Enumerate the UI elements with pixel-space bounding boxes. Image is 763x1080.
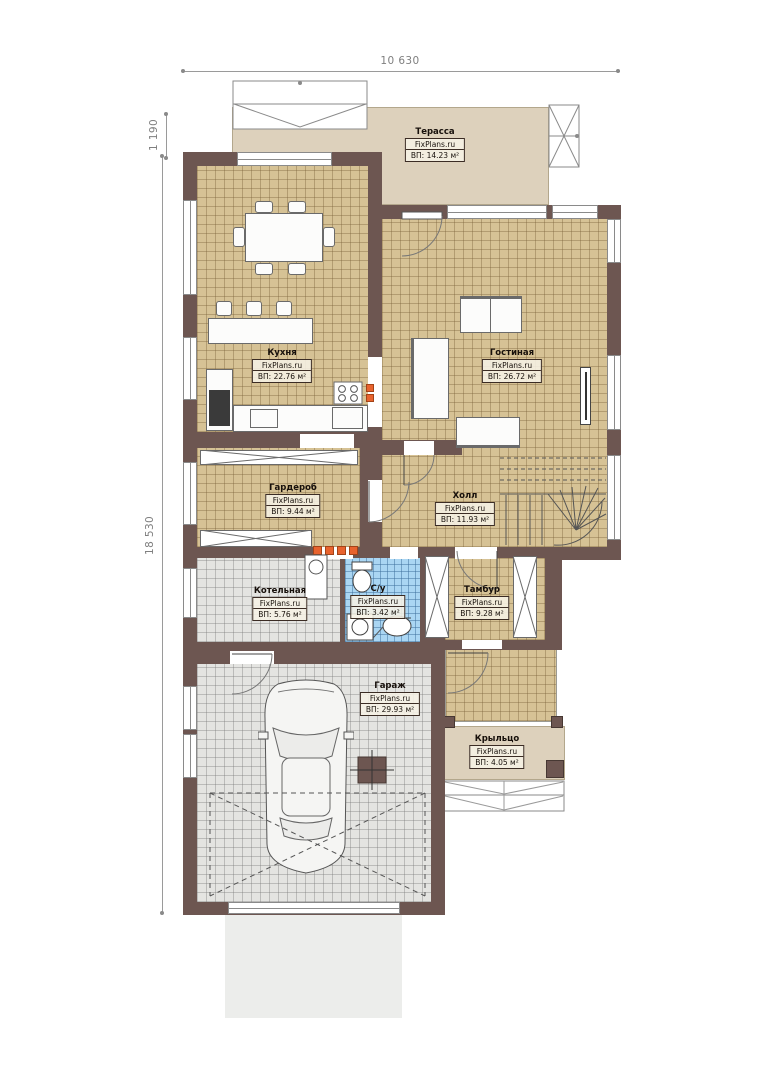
door-arc-icon: [366, 478, 410, 526]
window: [183, 200, 197, 295]
branding-label: FixPlans.ru: [483, 360, 541, 371]
dimension-line-left-big: [162, 156, 163, 913]
room-name: Котельная: [254, 586, 306, 596]
radiator-marker: [366, 384, 374, 392]
chair: [288, 201, 306, 213]
garage-door-swing: [205, 788, 430, 900]
room-label-garage: Гараж FixPlans.ru ВП: 29.93 м²: [360, 681, 420, 716]
window: [607, 455, 621, 540]
room-name: Гараж: [374, 681, 405, 691]
fridge-door: [209, 390, 230, 426]
room-label-kitchen: Кухня FixPlans.ru ВП: 22.76 м²: [252, 348, 312, 383]
room-area: ВП: 29.93 м²: [361, 704, 419, 715]
dimension-line-left-small: [166, 114, 167, 158]
kitchen-sink: [250, 409, 278, 428]
branding-label: FixPlans.ru: [266, 495, 319, 506]
room-name: Крыльцо: [475, 734, 519, 744]
room-area: ВП: 14.23 м²: [406, 150, 464, 161]
kitchen-island: [208, 318, 313, 344]
window: [607, 355, 621, 430]
bar-stool: [246, 301, 262, 316]
bar-stool: [216, 301, 232, 316]
room-label-tambour: Тамбур FixPlans.ru ВП: 9.28 м²: [454, 585, 509, 620]
pergola-marker: [232, 80, 368, 130]
room-label-wardrobe: Гардероб FixPlans.ru ВП: 9.44 м²: [265, 483, 320, 518]
stairs: [498, 450, 608, 546]
window: [183, 568, 197, 618]
room-label-terrace: Терасса FixPlans.ru ВП: 14.23 м²: [405, 127, 465, 162]
tv-screen: [585, 372, 587, 420]
toilet-icon: [352, 562, 372, 570]
door-opening: [462, 640, 502, 649]
pillar-marker: [350, 750, 394, 790]
radiator-marker: [337, 546, 346, 555]
room-area: ВП: 22.76 м²: [253, 371, 311, 382]
chair: [255, 201, 273, 213]
room-label-boiler: Котельная FixPlans.ru ВП: 5.76 м²: [252, 586, 307, 621]
room-area: ВП: 3.42 м²: [351, 607, 404, 618]
dimension-left-offset: 1 190: [148, 112, 160, 158]
branding-label: FixPlans.ru: [351, 596, 404, 607]
room-name: Терасса: [415, 127, 454, 137]
window: [607, 219, 621, 263]
room-area: ВП: 26.72 м²: [483, 371, 541, 382]
room-name: Гардероб: [269, 483, 317, 493]
dimension-endpoint: [160, 154, 164, 158]
bar-stool: [276, 301, 292, 316]
porch-steps: [443, 780, 565, 812]
room-name: Гостиная: [490, 348, 534, 358]
branding-label: FixPlans.ru: [361, 693, 419, 704]
sofa: [411, 338, 449, 419]
room-name: С/у: [371, 584, 386, 594]
chair: [233, 227, 245, 247]
room-label-living: Гостиная FixPlans.ru ВП: 26.72 м²: [482, 348, 542, 383]
sofa-divider: [490, 297, 491, 332]
dimension-left-height: 18 530: [144, 505, 156, 565]
chair: [323, 227, 335, 247]
room-area: ВП: 4.05 м²: [470, 757, 523, 768]
branding-label: FixPlans.ru: [455, 597, 508, 608]
door-arc-icon: [445, 650, 491, 696]
room-label-porch: Крыльцо FixPlans.ru ВП: 4.05 м²: [469, 734, 524, 769]
room-area: ВП: 9.28 м²: [455, 608, 508, 619]
door-opening: [300, 434, 354, 448]
branding-label: FixPlans.ru: [253, 598, 306, 609]
room-name: Тамбур: [464, 585, 500, 595]
window: [183, 462, 197, 525]
dimension-line-top: [183, 71, 620, 72]
chair: [288, 263, 306, 275]
radiator-marker: [349, 546, 358, 555]
room-name: Холл: [453, 491, 478, 501]
branding-label: FixPlans.ru: [436, 503, 494, 514]
door-opening: [368, 357, 382, 427]
porch-column: [546, 760, 564, 778]
dimension-endpoint: [160, 911, 164, 915]
room-area: ВП: 5.76 м²: [253, 609, 306, 620]
branding-label: FixPlans.ru: [406, 139, 464, 150]
chair: [255, 263, 273, 275]
terrace-door-window: [447, 205, 547, 219]
dining-table: [245, 213, 323, 262]
sofa: [460, 296, 522, 333]
terrace-side-marker: [548, 104, 580, 168]
sofa: [456, 417, 520, 448]
window: [183, 686, 197, 730]
oven: [332, 407, 363, 429]
closet: [513, 556, 537, 638]
garage-door: [228, 902, 400, 914]
dimension-top-width: 10 630: [300, 55, 500, 67]
branding-label: FixPlans.ru: [470, 746, 523, 757]
closet: [200, 450, 358, 465]
window: [183, 337, 197, 400]
floor-plan-canvas: 10 630 1 190 18 530: [0, 0, 763, 1080]
room-name: Кухня: [267, 348, 296, 358]
dimension-endpoint: [164, 156, 168, 160]
closet: [425, 556, 449, 638]
radiator-marker: [366, 394, 374, 402]
dimension-endpoint: [616, 69, 620, 73]
dimension-endpoint: [164, 112, 168, 116]
room-label-hall: Холл FixPlans.ru ВП: 11.93 м²: [435, 491, 495, 526]
closet: [200, 530, 312, 547]
window: [183, 734, 197, 778]
window: [552, 205, 598, 219]
room-area: ВП: 11.93 м²: [436, 514, 494, 525]
door-arc-icon: [400, 210, 448, 260]
driveway: [225, 915, 402, 1018]
porch-column: [551, 716, 563, 728]
window: [237, 152, 332, 166]
stove-icon: [333, 381, 363, 405]
dimension-endpoint: [181, 69, 185, 73]
room-label-wc: С/у FixPlans.ru ВП: 3.42 м²: [350, 584, 405, 619]
sink-icon: [383, 616, 411, 636]
branding-label: FixPlans.ru: [253, 360, 311, 371]
room-area: ВП: 9.44 м²: [266, 506, 319, 517]
